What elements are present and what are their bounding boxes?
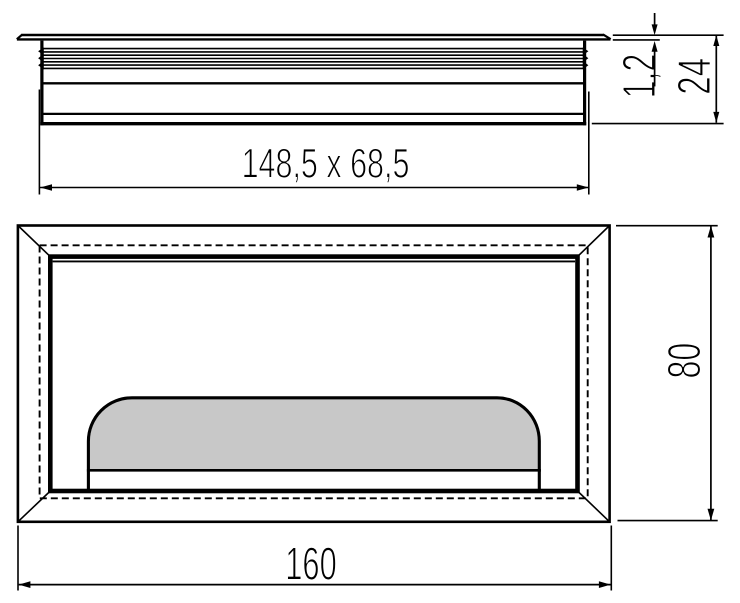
svg-text:160: 160 bbox=[285, 540, 336, 591]
svg-text:148,5 x 68,5: 148,5 x 68,5 bbox=[242, 140, 410, 187]
svg-text:80: 80 bbox=[659, 343, 710, 379]
svg-text:1,2: 1,2 bbox=[614, 54, 665, 99]
svg-text:24: 24 bbox=[670, 58, 720, 95]
